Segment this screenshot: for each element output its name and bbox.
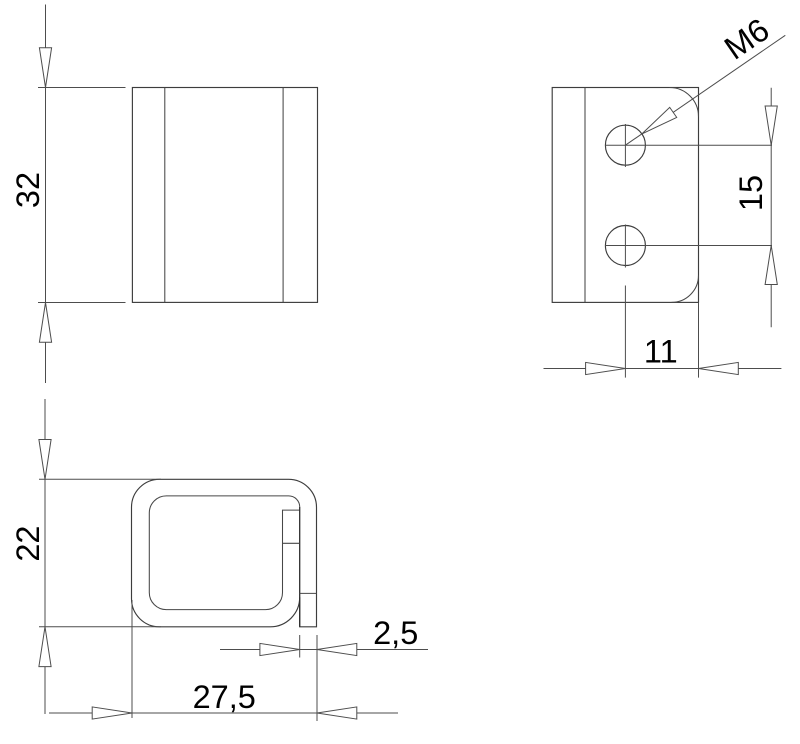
svg-text:2,5: 2,5 [373, 615, 418, 651]
svg-text:27,5: 27,5 [193, 679, 256, 715]
svg-text:32: 32 [10, 172, 46, 208]
svg-text:11: 11 [644, 333, 678, 369]
svg-text:15: 15 [733, 175, 769, 211]
svg-text:22: 22 [10, 526, 46, 562]
svg-text:M6: M6 [718, 11, 776, 66]
